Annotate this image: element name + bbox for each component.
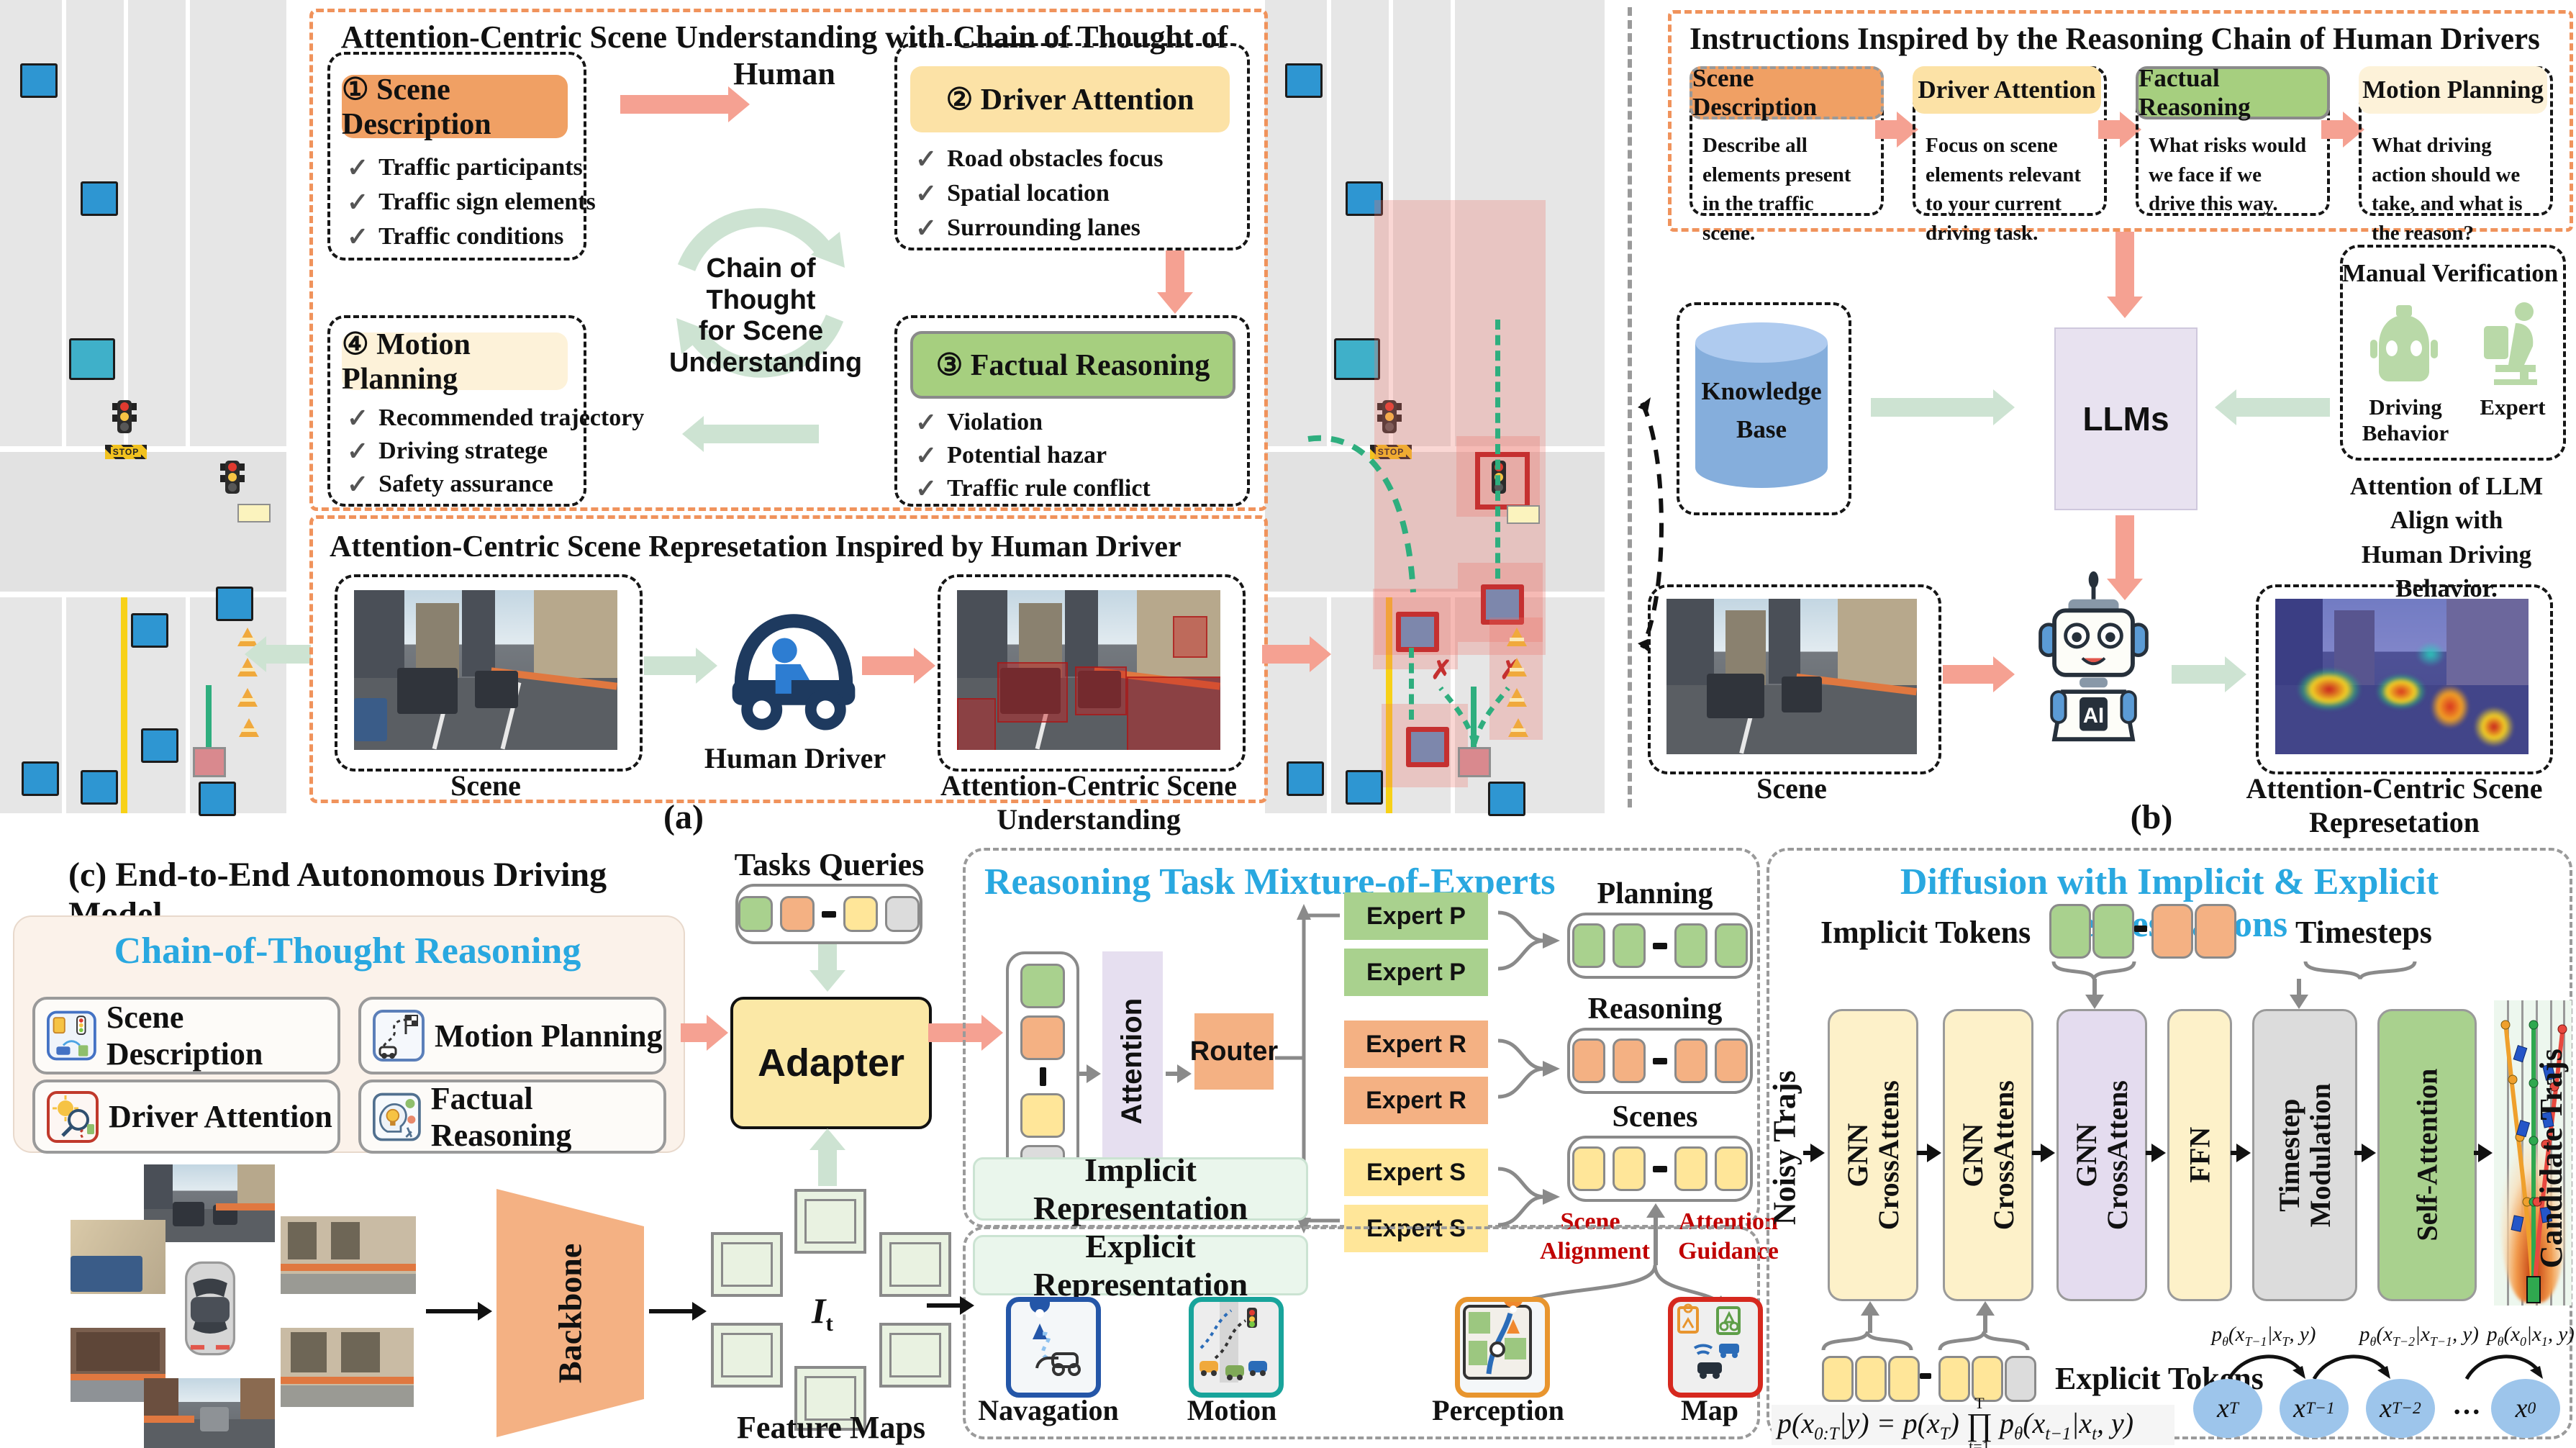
ego-vehicle xyxy=(1458,747,1491,777)
block-arrow xyxy=(2354,1143,2376,1163)
adapter-box: Adapter xyxy=(730,997,932,1129)
chain-arc xyxy=(2461,1350,2547,1382)
block-arrow xyxy=(2474,1143,2493,1163)
timesteps-brace xyxy=(2303,960,2418,982)
arrow-2-3 xyxy=(1157,250,1193,314)
checklist-item: ✓Violation xyxy=(915,407,1043,438)
attention-scene-label: Attention-Centric Scene Understanding xyxy=(912,769,1265,836)
green-arrow xyxy=(644,648,717,684)
step-header: Scene Description xyxy=(1690,66,1884,119)
explicit-token xyxy=(2005,1356,2036,1402)
lane-line xyxy=(62,0,66,446)
scenes-tokens xyxy=(1567,1136,1753,1202)
step-header: Factual Reasoning xyxy=(2136,66,2330,119)
gnn-crossattens-3: GNNCrossAttens xyxy=(2056,1009,2147,1301)
feature-map-tile xyxy=(879,1323,951,1388)
checklist-item: ✓Traffic sign elements xyxy=(347,187,596,217)
explicit-representation-label: Explicit Representation xyxy=(973,1235,1308,1295)
vehicle xyxy=(131,613,168,648)
green-arrow-left xyxy=(245,636,311,672)
step-arrow xyxy=(2321,114,2364,145)
self-attention-block: Self-Attention xyxy=(2377,1009,2477,1301)
llms-box: LLMs xyxy=(2054,327,2198,510)
checklist-item: ✓Traffic rule conflict xyxy=(915,474,1151,504)
attention-heatmap-photo xyxy=(2275,599,2529,754)
chain-label-1: pθ(xT−1|xT, y) xyxy=(2192,1323,2336,1349)
expert-label: Expert xyxy=(2470,394,2556,420)
expert-s-1: Expert S xyxy=(1344,1149,1488,1196)
motion-planning-icon xyxy=(373,1010,425,1062)
driver-attention-icon xyxy=(47,1091,99,1143)
vehicle xyxy=(216,587,253,621)
checklist-item: ✓Traffic conditions xyxy=(347,222,563,252)
sign-box xyxy=(237,504,271,522)
step-arrow xyxy=(2098,114,2141,145)
checklist-item: ✓Spatial location xyxy=(915,178,1110,209)
map-label: Map xyxy=(1652,1393,1767,1427)
motion-icon xyxy=(1189,1297,1284,1398)
expert-r-1: Expert R xyxy=(1344,1021,1488,1068)
check-icon: ✓ xyxy=(915,440,937,471)
feature-map-tile xyxy=(711,1232,783,1297)
attention-scene-photo xyxy=(957,590,1220,750)
scene-label-b: Scene xyxy=(1648,771,1936,805)
check-icon: ✓ xyxy=(915,213,937,243)
arrow-features-adapter xyxy=(810,1128,845,1186)
step-header: Driver Attention xyxy=(1913,66,2101,114)
x-mark-icon: ✗ xyxy=(1430,655,1452,685)
check-icon: ✓ xyxy=(347,153,368,183)
checklist-item: ✓Safety assurance xyxy=(347,469,553,499)
ai-robot-icon: AI xyxy=(2023,569,2164,745)
robot-ai-text: AI xyxy=(2083,705,2104,728)
pink-arrow-robot xyxy=(1943,656,2015,692)
tasks-queries-label: Tasks Queries xyxy=(730,846,928,883)
scene-description-header: ① Scene Description xyxy=(342,75,568,138)
stop-text: STOP xyxy=(111,447,141,457)
trajectory-line xyxy=(206,685,212,747)
cot-item-motion-planning: Motion Planning xyxy=(358,997,666,1074)
explicit-token xyxy=(1888,1356,1920,1402)
pink-arrow xyxy=(862,648,935,684)
block-arrow xyxy=(2032,1143,2055,1163)
factual-reasoning-header: ③ Factual Reasoning xyxy=(910,331,1235,399)
check-icon: ✓ xyxy=(915,178,937,209)
human-driver-icon xyxy=(725,596,862,737)
lane-line xyxy=(186,0,190,446)
explicit-token xyxy=(1855,1356,1887,1402)
reasoning-tokens xyxy=(1567,1028,1753,1094)
scene-photo-b xyxy=(1666,599,1917,754)
cot-title: Chain-of-Thought Reasoning xyxy=(13,930,682,972)
vehicle xyxy=(1287,761,1324,796)
lane-line xyxy=(186,597,190,813)
checklist-item: ✓Driving stratege xyxy=(347,436,548,466)
instructions-title: Instructions Inspired by the Reasoning C… xyxy=(1690,22,2553,57)
vehicle xyxy=(81,770,118,805)
ego-car-topview-icon xyxy=(181,1258,239,1359)
arrow-3-4 xyxy=(682,416,819,452)
implicit-token xyxy=(2049,904,2091,959)
explicit-brace-2 xyxy=(1937,1331,2031,1352)
backbone-label-wrap: Backbone xyxy=(496,1189,644,1437)
explicit-token xyxy=(1938,1356,1970,1402)
heatmap-label: Attention-Centric Scene Represetation xyxy=(2213,771,2576,839)
moe-title: Reasoning Task Mixture-of-Experts xyxy=(984,861,1646,903)
cot-item-scene-description: Scene Description xyxy=(32,997,340,1074)
taxi-icon xyxy=(2364,302,2444,389)
block-arrow xyxy=(1917,1143,1941,1163)
step-header: Motion Planning xyxy=(2359,66,2547,114)
implicit-token xyxy=(2195,904,2236,959)
green-arrow-heatmap xyxy=(2172,656,2246,692)
navigation-label: Navagation xyxy=(973,1393,1124,1427)
step-desc: Focus on scene elements relevant to your… xyxy=(1926,131,2091,248)
road-scene-attention: STOP ✗ ✗ xyxy=(1265,0,1605,813)
driver-attention-header: ② Driver Attention xyxy=(910,66,1230,132)
caption-a: (a) xyxy=(612,797,756,837)
planned-trajectory xyxy=(1305,430,1442,603)
candidate-trajs-label: Candidate Trajs xyxy=(2534,1049,2569,1268)
vehicle xyxy=(199,782,236,816)
expert-p-1: Expert P xyxy=(1344,892,1488,940)
arrow-instructions-llms xyxy=(2107,232,2143,318)
chain-ellipsis: ··· xyxy=(2444,1395,2490,1429)
panel-divider xyxy=(1628,7,1632,807)
panel-a-bottom-title: Attention-Centric Scene Represetation In… xyxy=(330,530,1193,564)
block-arrow xyxy=(2231,1143,2251,1163)
yellow-center-line xyxy=(121,597,127,813)
road-scene-left: STOP xyxy=(0,0,286,813)
vehicle xyxy=(81,181,118,216)
ego-vehicle xyxy=(193,747,226,777)
traffic-light-icon xyxy=(216,461,249,498)
check-icon: ✓ xyxy=(915,407,937,438)
motion-planning-header: ④ Motion Planning xyxy=(342,332,568,390)
expert-p-2: Expert P xyxy=(1344,949,1488,996)
ffn-block: FFN xyxy=(2167,1009,2232,1301)
bracket-planning xyxy=(1494,908,1562,973)
arrow-explicit-gnn1 xyxy=(1861,1301,1879,1333)
vehicle xyxy=(1285,63,1323,98)
figure-canvas: STOP xyxy=(0,0,2576,1448)
scene-photo xyxy=(354,590,617,750)
scene-description-icon xyxy=(47,1010,96,1062)
explicit-token xyxy=(1822,1356,1854,1402)
timestep-modulation-block: TimestepModulation xyxy=(2252,1009,2357,1301)
node-xT-1: xT−1 xyxy=(2280,1379,2349,1438)
step-arrow xyxy=(1875,114,1918,145)
driving-behavior-label: Driving Behavior xyxy=(2344,394,2467,446)
pink-arrow-to-scene xyxy=(1262,636,1331,672)
gnn-crossattens-1: GNNCrossAttens xyxy=(1828,1009,1918,1301)
feature-map-tile xyxy=(794,1189,866,1254)
router-box: Router xyxy=(1194,1013,1274,1090)
traffic-cones xyxy=(1502,628,1531,750)
checklist-item: ✓Potential hazar xyxy=(915,440,1107,471)
chain-label-3: pθ(x0|x1, y) xyxy=(2484,1323,2576,1349)
cycle-label: Chain of Thought for Scene Understanding xyxy=(669,253,853,379)
check-icon: ✓ xyxy=(915,144,937,174)
feature-map-tile xyxy=(711,1323,783,1388)
human-driver-label: Human Driver xyxy=(691,741,899,775)
arrow-explicit-gnn2 xyxy=(1976,1301,1995,1333)
vehicle xyxy=(22,761,59,796)
arrow-cot-adapter xyxy=(681,1016,728,1049)
arrow-queries-adapter xyxy=(810,944,845,992)
lane-line xyxy=(62,597,66,813)
vehicle xyxy=(141,728,178,763)
candidate-trajs-label-wrap: Candidate Trajs xyxy=(2533,1029,2570,1288)
implicit-representation-label: Implicit Representation xyxy=(973,1157,1308,1221)
vehicle xyxy=(20,63,58,98)
step-desc: What risks would we face if we drive thi… xyxy=(2149,131,2311,219)
feature-maps-label: Feature Maps xyxy=(720,1409,943,1446)
chain-arc xyxy=(2308,1350,2395,1382)
feature-map-tile xyxy=(879,1232,951,1297)
sign-box xyxy=(1507,505,1540,524)
scene-label: Scene xyxy=(335,769,637,802)
it-label: It xyxy=(812,1290,862,1336)
vehicle xyxy=(1488,782,1525,816)
trajectory-dashed xyxy=(1495,320,1500,579)
map-icon xyxy=(1668,1297,1763,1398)
chain-label-2: pθ(xT−2|xT−1, y) xyxy=(2340,1323,2498,1349)
tasks-queries-tokens xyxy=(735,884,922,944)
cot-item-driver-attention: Driver Attention xyxy=(32,1080,340,1154)
planning-tokens xyxy=(1567,913,1753,979)
lane-line xyxy=(124,0,128,446)
block-arrow xyxy=(2146,1143,2166,1163)
gnn-crossattens-2: GNNCrossAttens xyxy=(1943,1009,2033,1301)
navigation-icon xyxy=(1006,1297,1101,1398)
check-icon: ✓ xyxy=(347,469,368,499)
backbone-label: Backbone xyxy=(553,1243,589,1383)
arrow-implicit-gnn3 xyxy=(2085,979,2104,1009)
arrow-1-2 xyxy=(620,86,750,122)
vehicle xyxy=(69,338,115,380)
factual-reasoning-icon xyxy=(373,1091,421,1143)
arrow-timesteps-block xyxy=(2290,979,2308,1009)
arrow-noisy-gnn1 xyxy=(1803,1143,1825,1163)
check-icon: ✓ xyxy=(347,403,368,433)
trajectory-dashed xyxy=(1409,648,1414,720)
implicit-tokens-label: Implicit Tokens xyxy=(1820,914,2036,951)
arrow-collage-backbone xyxy=(426,1301,492,1321)
arrow-mv-llms xyxy=(2215,389,2330,426)
attention-box: Attention xyxy=(1102,951,1163,1172)
perception-label: Perception xyxy=(1412,1393,1584,1427)
stop-barrier: STOP xyxy=(105,445,147,459)
noisy-trajs-label: Noisy Trajs xyxy=(1767,1071,1802,1226)
step-desc: What driving action should we take, and … xyxy=(2372,131,2536,248)
check-icon: ✓ xyxy=(347,187,368,217)
cot-item-factual-reasoning: Factual Reasoning xyxy=(358,1080,666,1154)
node-xT-2: xT−2 xyxy=(2366,1379,2435,1438)
expert-icon xyxy=(2474,299,2549,389)
chain-arc xyxy=(2223,1350,2310,1382)
perception-icon xyxy=(1455,1297,1550,1398)
arrow-attention-router xyxy=(1166,1064,1192,1084)
manual-verification-title: Manual Verification xyxy=(2340,259,2560,288)
checklist-item: ✓Road obstacles focus xyxy=(915,144,1164,174)
vehicle xyxy=(1346,770,1383,805)
checklist-item: ✓Surrounding lanes xyxy=(915,213,1140,243)
knowledge-base-cylinder: Knowledge Base xyxy=(1695,322,1828,488)
explicit-brace-1 xyxy=(1820,1331,1914,1352)
node-xT: xT xyxy=(2193,1379,2262,1438)
implicit-token xyxy=(2151,904,2193,959)
arrow-tokens-attention xyxy=(1076,1064,1101,1084)
check-icon: ✓ xyxy=(915,474,937,504)
timesteps-label: Timesteps xyxy=(2295,914,2468,951)
check-icon: ✓ xyxy=(347,436,368,466)
caption-b: (b) xyxy=(2080,797,2223,837)
expert-r-2: Expert R xyxy=(1344,1077,1488,1124)
traffic-light-icon xyxy=(108,400,141,438)
motion-label: Motion xyxy=(1167,1393,1297,1427)
checklist-item: ✓Recommended trajectory xyxy=(347,403,644,433)
node-x0: x0 xyxy=(2491,1379,2560,1438)
arrow-features-explicit xyxy=(927,1295,974,1316)
step-desc: Describe all elements present in the tra… xyxy=(1702,131,1867,248)
vehicle-highlighted xyxy=(1396,612,1439,652)
checklist-item: ✓Traffic participants xyxy=(347,153,583,183)
arrow-kb-llms xyxy=(1871,389,2015,426)
implicit-token xyxy=(2092,904,2134,959)
vehicle xyxy=(1334,338,1380,380)
diffusion-formula: p(x0:T|y) = p(xT) T ∏ t=1 pθ(xt−1|xt, y) xyxy=(1772,1405,2174,1445)
arrow-backbone-features xyxy=(649,1301,707,1321)
noisy-trajs-label-wrap: Noisy Trajs xyxy=(1764,1029,1805,1267)
check-icon: ✓ xyxy=(347,222,368,252)
